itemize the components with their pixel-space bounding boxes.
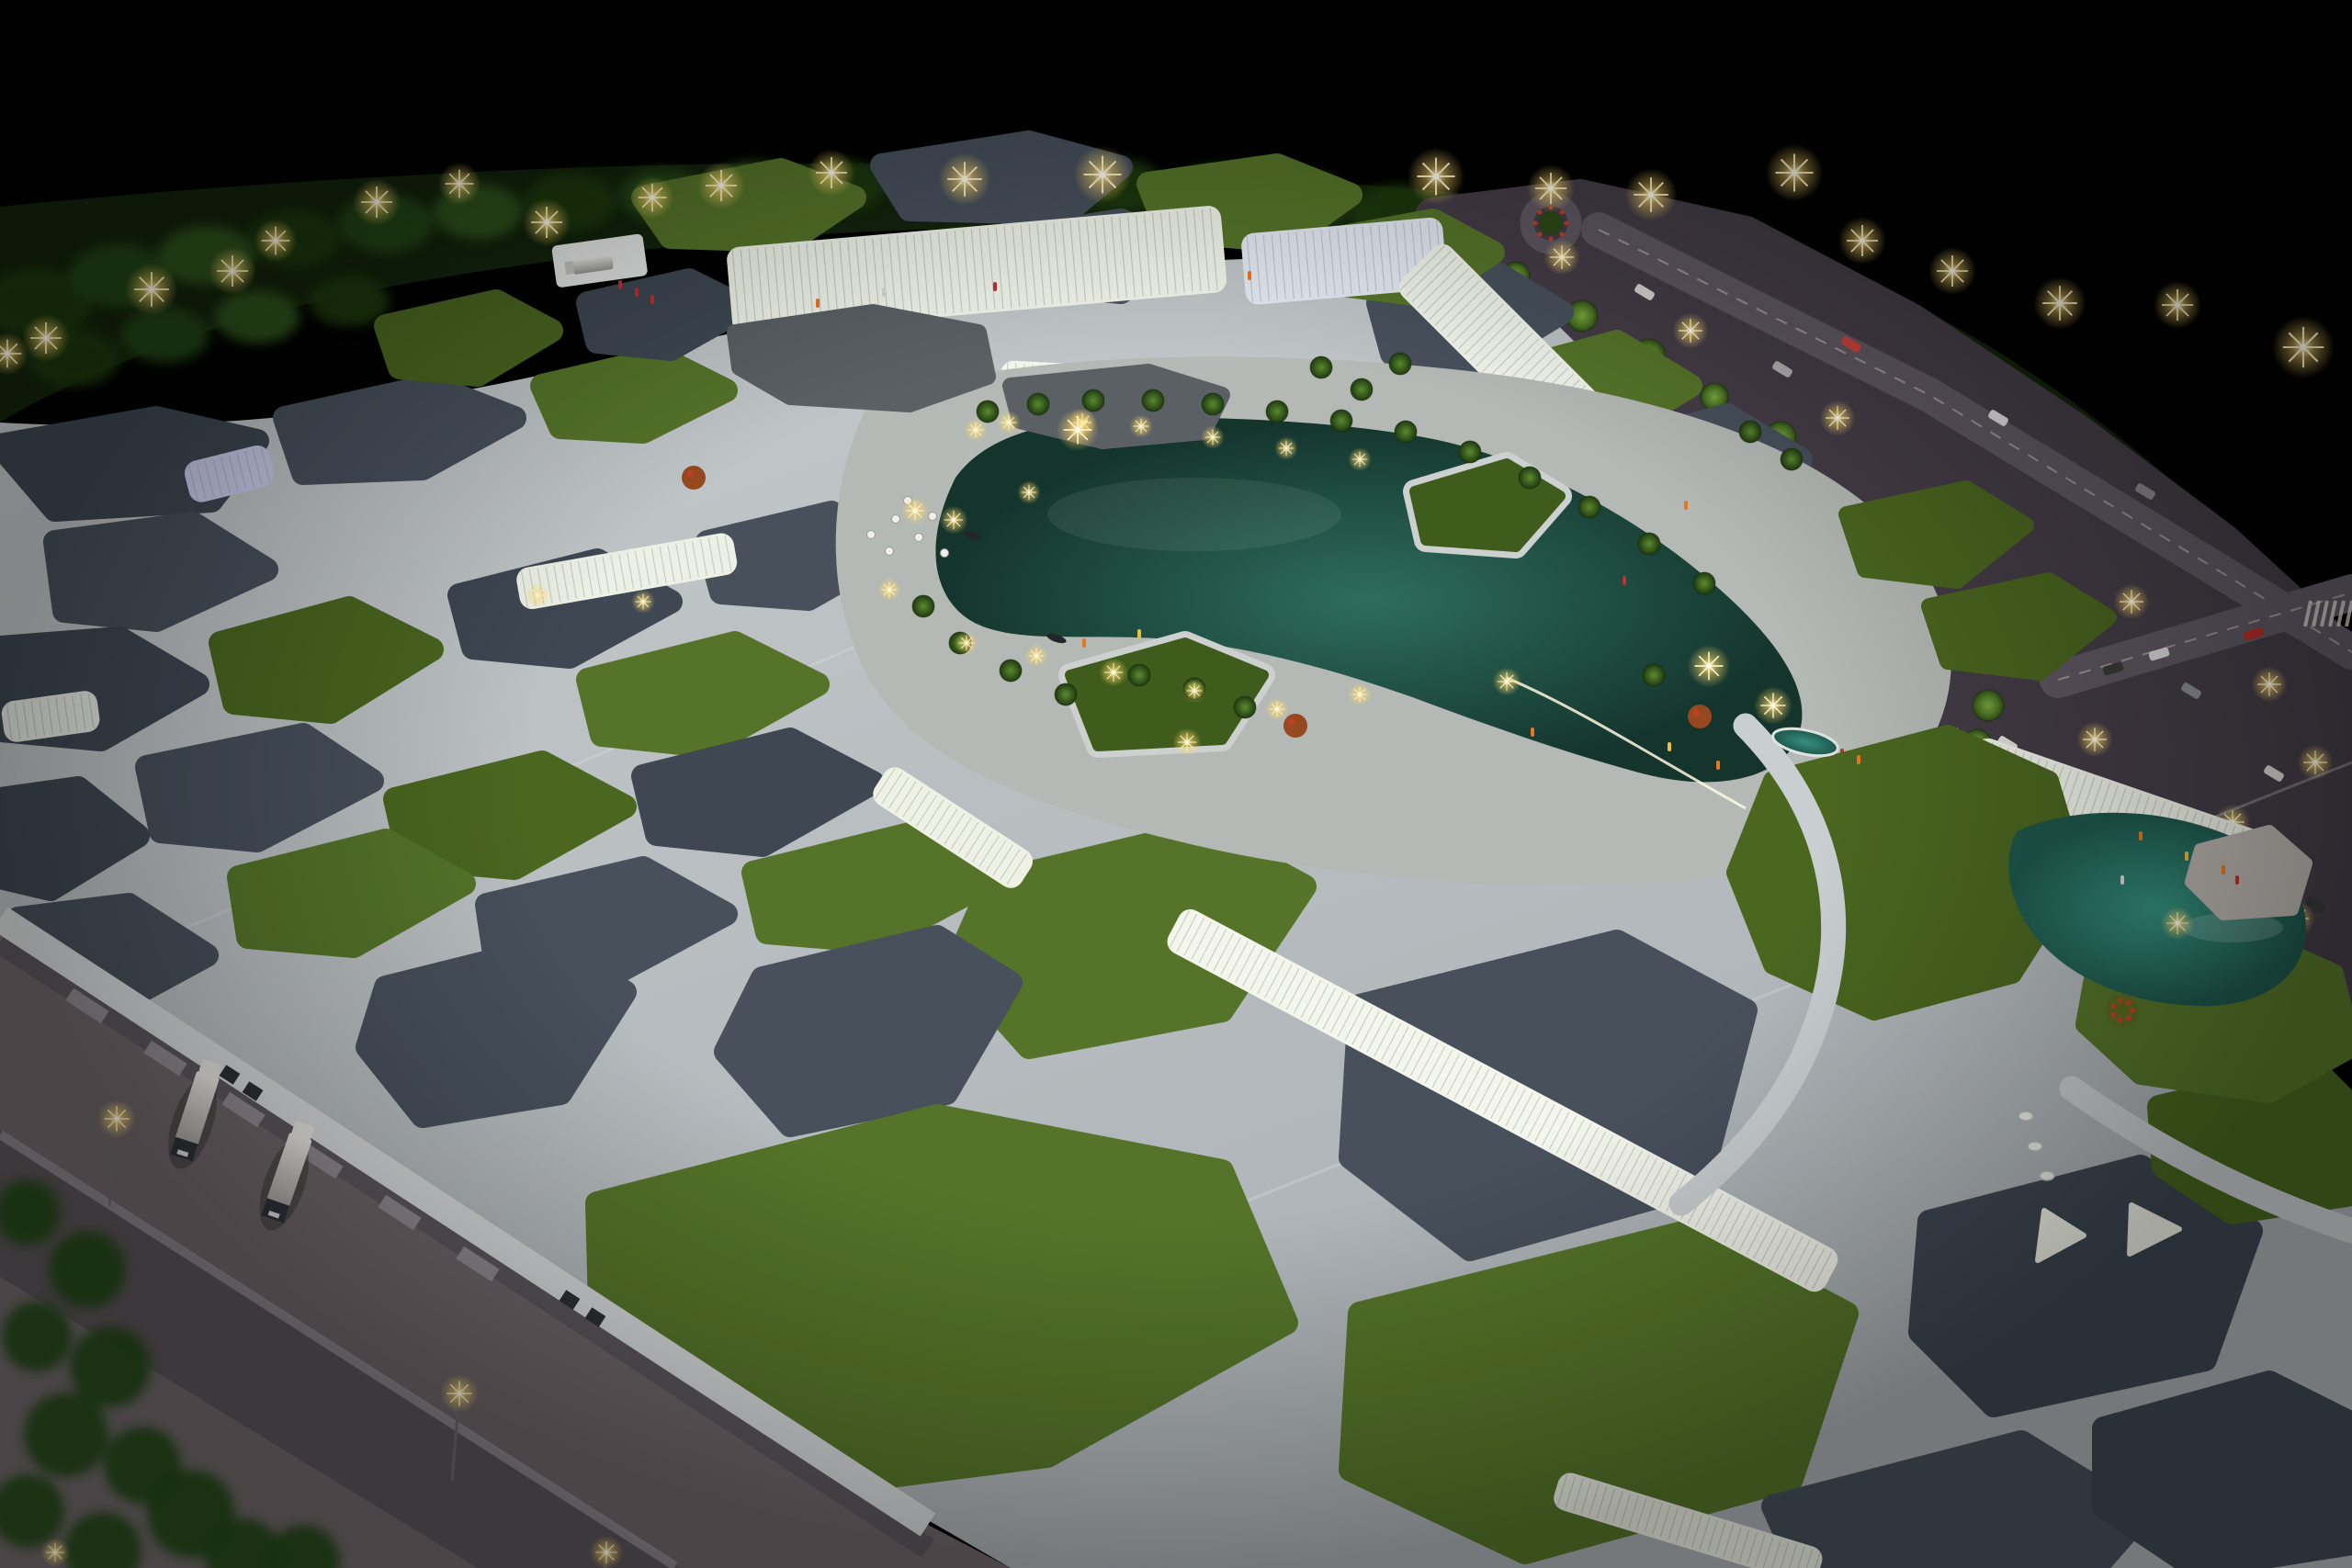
photo-vignette (0, 0, 2352, 1568)
scene-canvas (0, 0, 2352, 1568)
architectural-model-photo (0, 0, 2352, 1568)
vignette-layer (0, 0, 2352, 1568)
